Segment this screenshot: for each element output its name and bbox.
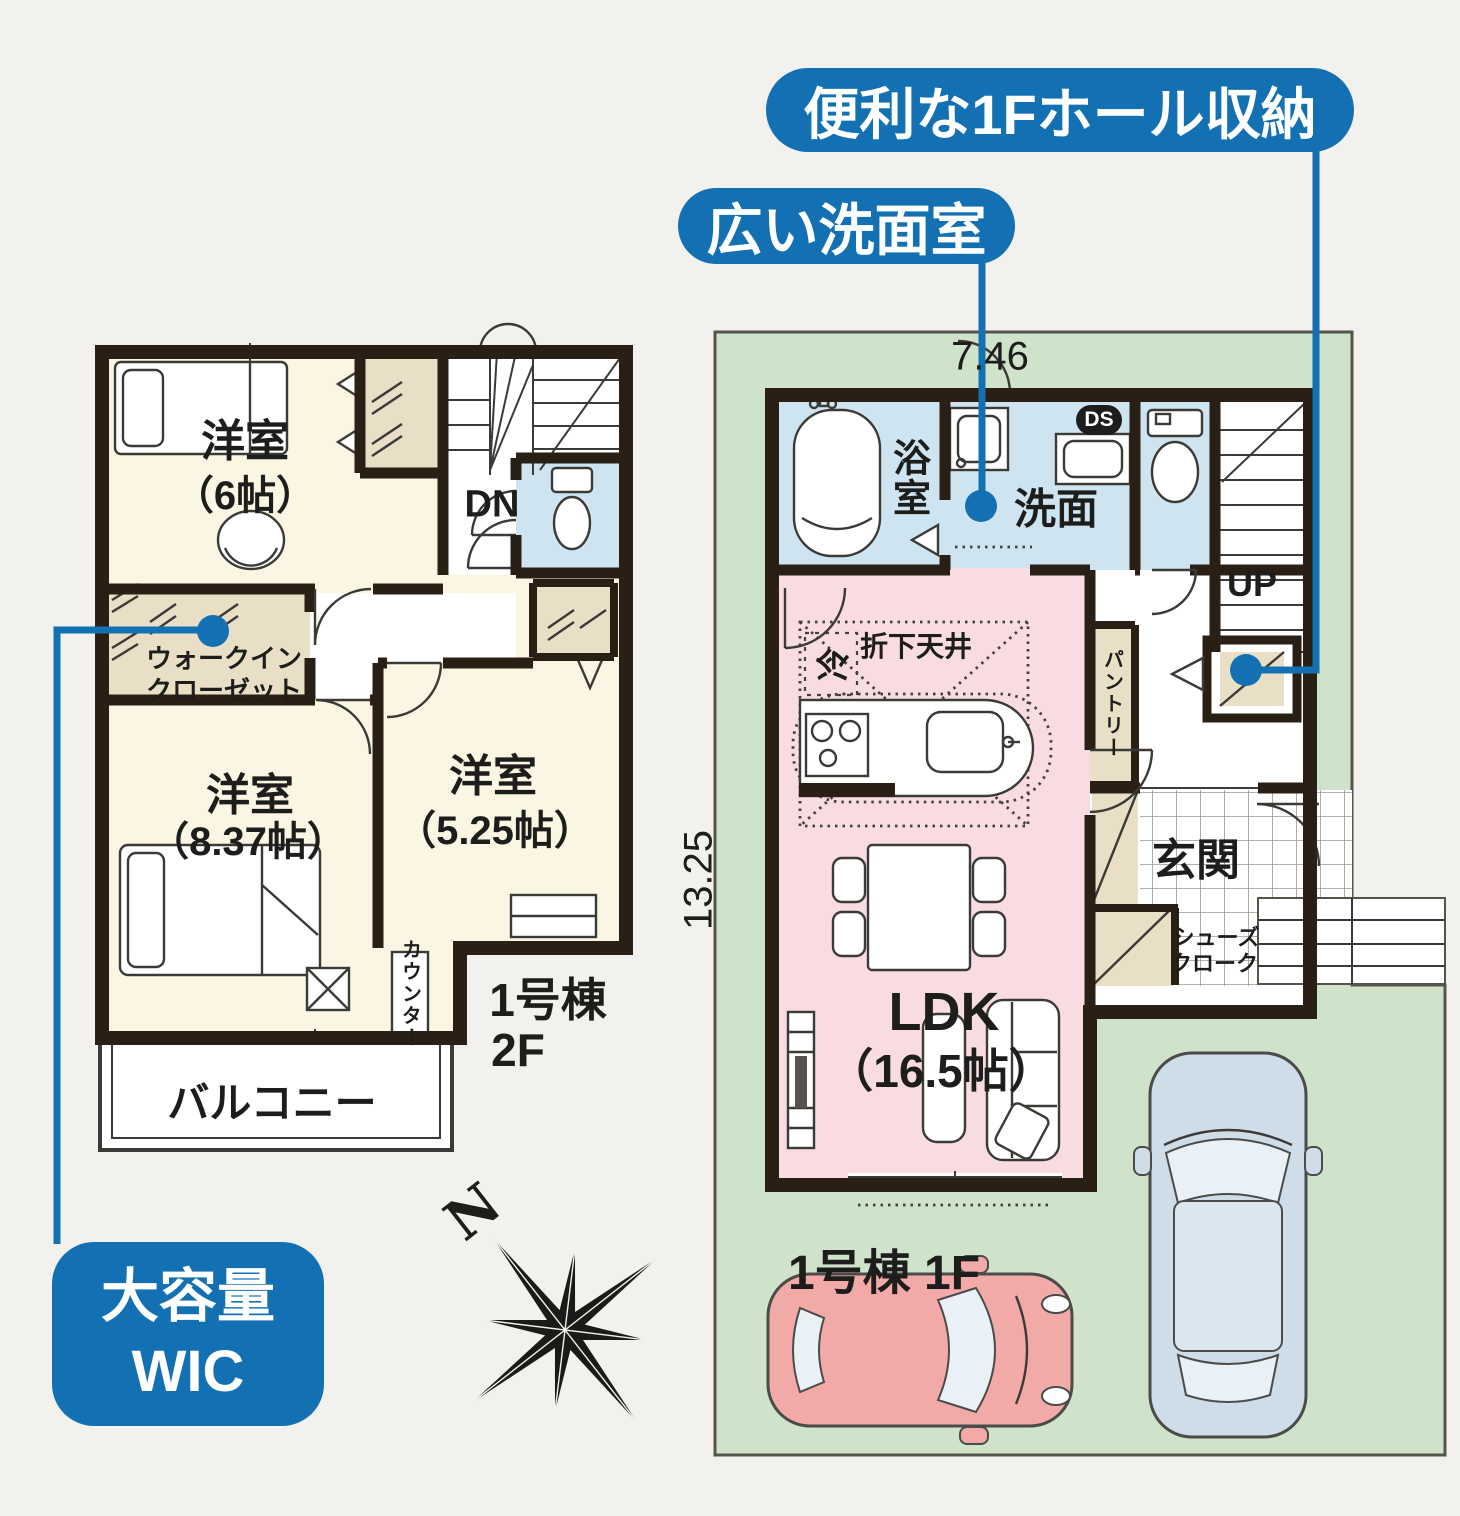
bathtub [794,410,880,556]
counter-label: カウンター [396,939,425,1049]
callout-wic-line1: 大容量 [101,1259,275,1334]
callout-banner-washroom: 広い洗面室 [678,188,1015,264]
site-width-dim: 7.46 [951,335,1029,380]
dining-table [868,845,970,970]
kitchen-sink [927,712,1003,772]
pantry-label: パントリー [1098,649,1127,759]
floor2-title-line1: 1号棟 [489,964,607,1030]
callout-banner-wic: 大容量 WIC [52,1242,324,1426]
room-label-washroom: 洗面 [1014,476,1098,537]
room-size-ldk: （16.5帖） [827,1035,1055,1101]
wic-label-line2: クローゼット [146,671,302,708]
dropped-ceiling-label: 折下天井 [860,625,972,665]
stairs-down-label: DN [465,484,520,527]
callout-banner-hall-storage: 便利な1Fホール収納 [766,68,1354,152]
site-depth-dim: 13.25 [677,830,722,930]
floor1-title: 1号棟 1F [788,1233,980,1303]
shoes-cloak-line2: クローク [1170,946,1258,978]
room-label-genkan: 玄関 [1152,824,1240,888]
stairs-up-label: UP [1227,563,1277,605]
room-label-bath: 浴室 [881,438,936,518]
callout-dot-washroom [965,490,997,522]
room-label-bedroom525: 洋室 [449,740,537,804]
room-label-ldk: LDK [889,981,1000,1043]
floor2-title-line2: 2F [491,1023,545,1077]
car-blue [1134,1053,1322,1437]
room-size-bedroom525: （5.25帖） [396,798,594,856]
callout-wic-line2: WIC [132,1334,245,1409]
callout-dot-hall-storage [1230,654,1262,686]
toilet-2f [552,468,592,492]
room-size-bedroom837: （8.37帖） [149,809,347,867]
room-size-bedroom6: （6帖） [174,463,316,521]
balcony-label: バルコニー [167,1070,376,1131]
closet-2f-b [533,583,614,657]
room-label-bedroom6: 洋室 [201,405,289,469]
floorplan-page: 便利な1Fホール収納 広い洗面室 大容量 WIC 洋室 （6帖） DN ウォーク… [0,0,1460,1516]
fridge-label: 冷 [807,647,856,681]
duct-space-label: DS [1076,405,1122,435]
